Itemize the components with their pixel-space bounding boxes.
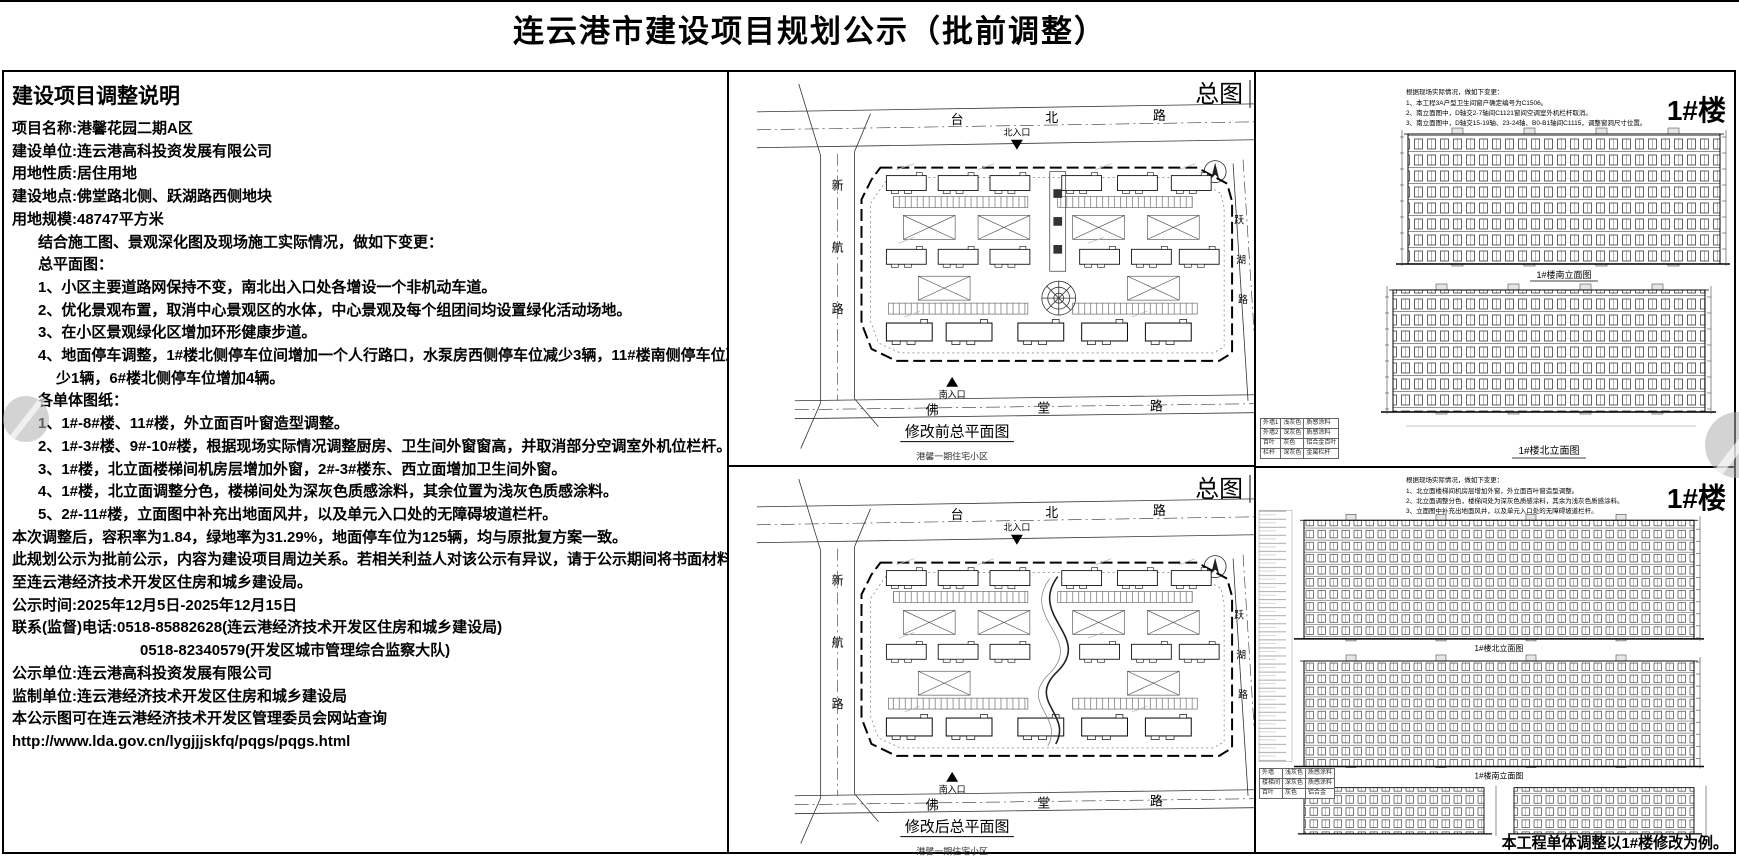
road-label-south-1: 佛: [926, 403, 939, 418]
elevation-c: [1294, 514, 1704, 641]
units-subheading: 各单体图纸：: [12, 390, 721, 413]
publicity-period-line: 公示时间:2025年12月5日-2025年12月15日: [12, 595, 721, 618]
summary-line: 本次调整后，容积率为1.84，绿地率为31.29%，地面停车位为125辆，均与原…: [12, 527, 721, 550]
south-entrance-label: 南入口: [939, 783, 966, 794]
supervision-unit-line: 监制单位:连云港经济技术开发区住房和城乡建设局: [12, 686, 721, 709]
north-entrance-label: 北入口: [1003, 522, 1030, 532]
site-plan-before-panel: 总图 台 北 路 新 航 路: [729, 72, 1254, 467]
materials-table: 外墙1浅灰色质感涂料 外墙2深灰色质感涂料 百叶灰色铝合金百叶 栏杆深灰色金属栏…: [1260, 418, 1339, 459]
road-label-west-2: 航: [832, 634, 844, 649]
elevation-south: [1396, 128, 1730, 266]
unit-item-4: 4、1#楼，北立面调整分色，楼梯间处为深灰色质感涂料，其余位置为浅灰色质感涂料。: [12, 481, 721, 504]
website-url: http://www.lda.gov.cn/lygjjjskfq/pqgs/pq…: [12, 731, 721, 754]
building-label: 1#楼: [1667, 483, 1726, 514]
road-label-south-2: 堂: [1037, 401, 1050, 416]
unit-item-2: 2、1#-3#楼、9#-10#楼，根据现场实际情况调整厨房、卫生间外窗窗高，并取…: [12, 436, 721, 459]
north-road: [757, 104, 1254, 148]
unit-item-5: 5、2#-11#楼，立面图中补充出地面风井，以及单元入口处的无障碍坡道栏杆。: [12, 504, 721, 527]
location-line: 建设地点:佛堂路北侧、跃湖路西侧地块: [12, 186, 721, 209]
contact-phone-line-2: 0518-82340579(开发区城市管理综合监察大队): [12, 640, 721, 663]
elevation-drawing-top: 根据现场实际情况，做如下变更： 1、本工程3A户型卫生间窗户确定编号为C1506…: [1256, 72, 1734, 466]
road-label-east-2: 湖: [1236, 649, 1246, 661]
levels-list-strip: [1259, 510, 1292, 761]
elevation-f: [1508, 786, 1706, 836]
road-label-east-2: 湖: [1236, 254, 1246, 266]
road-label-north-3: 路: [1153, 502, 1166, 517]
south-road: [795, 789, 1254, 813]
central-fountain: [1042, 281, 1076, 315]
elevation-caption-0: 1#楼北立面图: [1475, 643, 1524, 653]
site-plan-before-drawing: 总图 台 北 路 新 航 路: [729, 72, 1254, 465]
notice-line-2: 至连云港经济技术开发区住房和城乡建设局。: [12, 572, 721, 595]
publicity-unit-line: 公示单位:连云港高科投资发展有限公司: [12, 663, 721, 686]
road-label-south-3: 路: [1150, 793, 1163, 808]
siteplan-item-2: 2、优化景观布置，取消中心景观区的水体，中心景观及每个组团间均设置绿化活动场地。: [12, 300, 721, 323]
road-label-south-3: 路: [1150, 399, 1163, 414]
elevation-note-3: 3、立面图中补充出地面风井，以及单元入口处的无障碍坡道栏杆。: [1406, 506, 1598, 515]
siteplan-item-1: 1、小区主要道路网保持不变，南北出入口处各增设一个非机动车道。: [12, 277, 721, 300]
elevation-note-0: 根据现场实际情况，做如下变更：: [1406, 87, 1504, 96]
north-entrance-label: 北入口: [1003, 128, 1030, 138]
elevation-note-2: 2、北立面调整分色，楼梯间处为深灰色质感涂料，其余为浅灰色质感涂料。: [1406, 496, 1624, 505]
change-intro-line: 结合施工图、景观深化图及现场施工实际情况，做如下变更：: [12, 232, 721, 255]
content-frame: 建设项目调整说明 项目名称:港馨花园二期A区 建设单位:连云港高科投资发展有限公…: [2, 70, 1736, 854]
site-plan-column: 总图 台 北 路 新 航 路: [729, 72, 1256, 852]
unit-item-3: 3、1#楼，北立面楼梯间机房层增加外窗，2#-3#楼东、西立面增加卫生间外窗。: [12, 459, 721, 482]
plan-caption: 修改前总平面图: [905, 424, 1010, 441]
north-road: [757, 498, 1254, 542]
section-heading: 建设项目调整说明: [12, 80, 721, 110]
siteplan-item-3: 3、在小区景观绿化区增加环形健康步道。: [12, 322, 721, 345]
plan-subcaption: 港馨一期住宅小区: [916, 845, 988, 856]
site-plan-after-drawing: 总图 台 北 路 新 航 路: [729, 467, 1254, 859]
elevation-note-1: 1、北立面楼梯间机房层增加外窗，外立面百叶窗造型调整。: [1406, 486, 1578, 495]
siteplan-item-4-cont: 少1辆，6#楼北侧停车位增加4辆。: [12, 368, 721, 391]
elevation-caption-0: 1#楼南立面图: [1536, 269, 1591, 280]
elevation-panel-bottom: 根据现场实际情况，做如下变更： 1、北立面楼梯间机房层增加外窗，外立面百叶窗造型…: [1256, 468, 1734, 852]
elevation-note-2: 2、南立面图中，D轴交2-7轴间C1121窗间空调室外机栏杆取消。: [1406, 108, 1592, 117]
south-entrance-arrow-icon: [946, 377, 958, 387]
project-description-panel: 建设项目调整说明 项目名称:港馨花园二期A区 建设单位:连云港高科投资发展有限公…: [4, 72, 729, 852]
elevation-note-0: 根据现场实际情况，做如下变更：: [1406, 475, 1503, 484]
road-label-north-3: 路: [1153, 108, 1166, 123]
road-label-west-2: 航: [832, 239, 844, 254]
east-road: [1233, 160, 1254, 401]
project-name-line: 项目名称:港馨花园二期A区: [12, 118, 721, 141]
example-footnote: 本工程单体调整以1#楼修改为例。: [1502, 834, 1728, 852]
elevation-panel-top: 根据现场实际情况，做如下变更： 1、本工程3A户型卫生间窗户确定编号为C1506…: [1256, 72, 1734, 468]
contact-phone-line: 联系(监督)电话:0518-85882628(连云港经济技术开发区住房和城乡建设…: [12, 617, 721, 640]
plan-subcaption: 港馨一期住宅小区: [916, 451, 988, 462]
siteplan-item-4: 4、地面停车调整，1#楼北侧停车位间增加一个人行路口，水泵房西侧停车位减少3辆，…: [12, 345, 721, 368]
south-entrance-label: 南入口: [939, 389, 966, 400]
road-label-east-3: 路: [1238, 688, 1248, 701]
road-label-east-1: 跃: [1234, 214, 1244, 226]
road-label-west-1: 新: [832, 178, 844, 193]
building-label: 1#楼: [1667, 95, 1726, 126]
elevation-north: [1381, 284, 1716, 414]
site-plan-after-panel: 总图 台 北 路 新 航 路: [729, 467, 1254, 859]
road-label-north-1: 台: [951, 112, 964, 127]
south-road: [795, 395, 1254, 419]
plan-caption: 修改后总平面图: [905, 818, 1010, 835]
elevation-caption-1: 1#楼北立面图: [1518, 444, 1579, 457]
elevation-d: [1294, 655, 1704, 769]
west-road: [799, 84, 879, 449]
east-road: [1233, 554, 1254, 795]
notice-line-1: 此规划公示为批前公示，内容为建设项目周边关系。若相关利益人对该公示有异议，请于公…: [12, 549, 721, 572]
south-entrance-arrow-icon: [946, 771, 958, 781]
elevation-note-3: 3、南立面图中，D轴交15-19轴、23-24轴、B0-B1轴间C1115，调整…: [1406, 118, 1646, 127]
land-area-line: 用地规模:48747平方米: [12, 209, 721, 232]
west-road: [799, 478, 879, 843]
unit-item-1: 1、1#-8#楼、11#楼，外立面百叶窗造型调整。: [12, 413, 721, 436]
builder-line: 建设单位:连云港高科投资发展有限公司: [12, 141, 721, 164]
north-entrance-arrow-icon: [1011, 534, 1023, 544]
page-title: 连云港市建设项目规划公示（批前调整）: [0, 6, 1620, 51]
road-label-north-2: 北: [1045, 504, 1058, 519]
road-label-west-3: 路: [832, 301, 844, 316]
road-label-south-2: 堂: [1037, 795, 1050, 810]
website-note-line: 本公示图可在连云港经济技术开发区管理委员会网站查询: [12, 708, 721, 731]
elevation-note-1: 1、本工程3A户型卫生间窗户确定编号为C1506。: [1406, 98, 1547, 107]
road-label-west-3: 路: [832, 696, 844, 711]
elevation-column: 根据现场实际情况，做如下变更： 1、本工程3A户型卫生间窗户确定编号为C1506…: [1256, 72, 1734, 852]
road-label-north-2: 北: [1045, 110, 1058, 125]
page-top-border: [0, 0, 1739, 2]
materials-table: 外墙浅灰色质感涂料 楼梯间深灰色质感涂料 百叶灰色铝合金: [1259, 768, 1335, 799]
siteplan-subheading: 总平面图：: [12, 254, 721, 277]
road-label-east-1: 跃: [1234, 609, 1244, 621]
land-use-line: 用地性质:居住用地: [12, 163, 721, 186]
road-label-north-1: 台: [951, 506, 964, 521]
road-label-east-3: 路: [1238, 293, 1248, 306]
elevation-caption-1: 1#楼南立面图: [1475, 771, 1524, 781]
road-label-west-1: 新: [832, 572, 844, 587]
road-label-south-1: 佛: [926, 797, 939, 812]
north-entrance-arrow-icon: [1011, 140, 1023, 150]
